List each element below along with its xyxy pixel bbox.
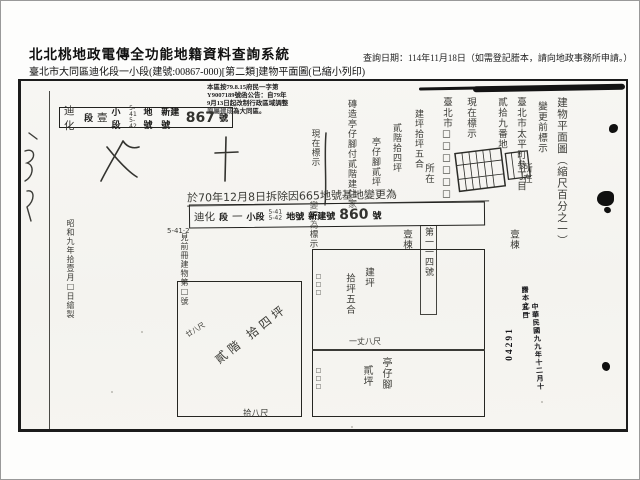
lot-numbers-hand: 5-41 5-42 bbox=[129, 106, 139, 130]
arcade-label-a: 亭仔腳 bbox=[378, 357, 393, 401]
old-address-column: 臺北市太平町參丁目 bbox=[513, 97, 527, 219]
scanned-document: 本區按79.8.15府民一字第 Y9007189號函公告：自79年 9月13日起… bbox=[18, 79, 628, 432]
strike-mark-icon bbox=[93, 137, 145, 187]
plan-right-divider bbox=[312, 349, 485, 351]
cross-mark-icon bbox=[211, 135, 241, 183]
ink-blob-2b bbox=[603, 206, 612, 214]
register-left-rule bbox=[49, 91, 50, 429]
plan-right-room bbox=[312, 249, 485, 417]
query-system-page: 北北桃地政電傳全功能地籍資料查詢系統 查詢日期：114年11月18日（如需登記謄… bbox=[0, 0, 640, 480]
old-lot-column: 貳拾九番地 bbox=[494, 97, 508, 161]
right-edge-dim-1: □□□ bbox=[315, 273, 322, 307]
right-top-area-b: 拾坪五合 bbox=[342, 273, 356, 325]
ink-blob-2 bbox=[597, 191, 614, 206]
right-divider-dim: 一丈八尺 bbox=[349, 336, 381, 347]
before-change-label: 變更前標示 bbox=[534, 101, 548, 171]
ink-smear-top-2 bbox=[419, 86, 479, 90]
lot-sub-note: 5-41·2 bbox=[167, 227, 190, 235]
paper-speck bbox=[141, 331, 143, 333]
margin-scribble-icon bbox=[15, 129, 45, 241]
current-mark-label-2: 現在標示 bbox=[309, 129, 321, 177]
system-title: 北北桃地政電傳全功能地籍資料查詢系統 bbox=[29, 43, 290, 63]
location-label-1: 所在 bbox=[519, 163, 533, 189]
drafting-date-column: 昭和九年拾壹月□日繪製 bbox=[65, 219, 76, 337]
right-top-area-a: 建坪 bbox=[361, 267, 375, 295]
paper-speck bbox=[541, 401, 543, 403]
current-mark-label: 現在標示 bbox=[463, 97, 477, 153]
receipt-stamp-serial: 04291 bbox=[505, 327, 515, 361]
paper-speck bbox=[351, 426, 353, 428]
document-subtitle: 臺北市大同區迪化段一小段(建號:00867-000)[第二類]建物平面圖(已縮小… bbox=[29, 63, 365, 78]
new-building-number-867: 867 bbox=[186, 110, 215, 126]
ink-smear-top bbox=[473, 84, 625, 93]
construction-column: 磚造亭仔腳付貳階建住家 bbox=[345, 99, 358, 267]
receipt-stamp-date: 中華民國九九年十二月十五日 bbox=[520, 302, 546, 395]
paper-speck bbox=[111, 391, 113, 393]
one-building-label-1: 壹棟 bbox=[506, 229, 520, 255]
ink-blob-3 bbox=[602, 362, 610, 371]
plan-title-column: 建物平面圖（縮尺百分之一） bbox=[555, 97, 570, 277]
lot-stamp-box-top: 迪化 段 壹 小段 5-41 5-42 地號 新建號 867 號 bbox=[59, 107, 233, 128]
left-room-bottom-dim: 拾八尺 bbox=[243, 407, 269, 419]
query-date: 查詢日期：114年11月18日（如需登記謄本，請向地政事務所申請。） bbox=[363, 51, 632, 64]
right-edge-dim-2: □□□ bbox=[315, 367, 322, 401]
lot-section-hand: 迪化 bbox=[64, 103, 80, 133]
arcade-label-b: 貳坪 bbox=[359, 365, 374, 395]
new-building-number-860: 860 bbox=[339, 207, 368, 223]
lot-stamp-box-bottom: 迪化 段 一 小段 5-41 5-42 地號 新建號 860 號 bbox=[189, 201, 485, 228]
ink-blob-1 bbox=[609, 124, 618, 133]
